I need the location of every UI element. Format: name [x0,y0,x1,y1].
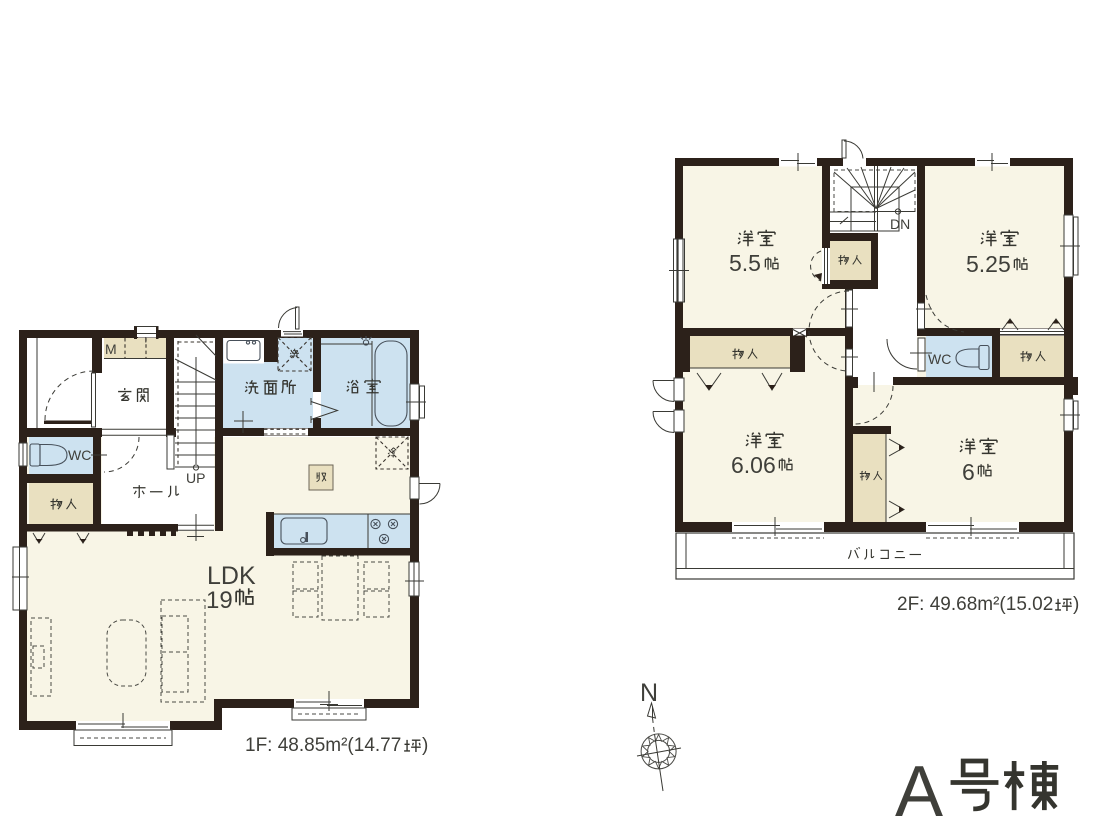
svg-text:19: 19 [206,587,233,614]
svg-text:UP: UP [186,470,205,486]
svg-text:6.06: 6.06 [731,452,776,478]
svg-text:WC: WC [928,351,951,367]
svg-text:): ) [422,735,428,756]
svg-text:6: 6 [962,459,975,485]
svg-text:2F: 49.68m²(15.02: 2F: 49.68m²(15.02 [897,594,1053,615]
svg-text:): ) [1073,594,1079,615]
svg-text:LDK: LDK [207,562,256,590]
svg-text:5.25: 5.25 [966,251,1011,277]
svg-text:M: M [105,341,117,357]
svg-text:N: N [640,679,658,707]
svg-text:WC: WC [68,447,91,463]
svg-text:DN: DN [890,216,910,232]
svg-text:1F: 48.85m²(14.77: 1F: 48.85m²(14.77 [245,735,401,756]
svg-text:A: A [895,752,943,825]
svg-text:5.5: 5.5 [729,250,761,276]
